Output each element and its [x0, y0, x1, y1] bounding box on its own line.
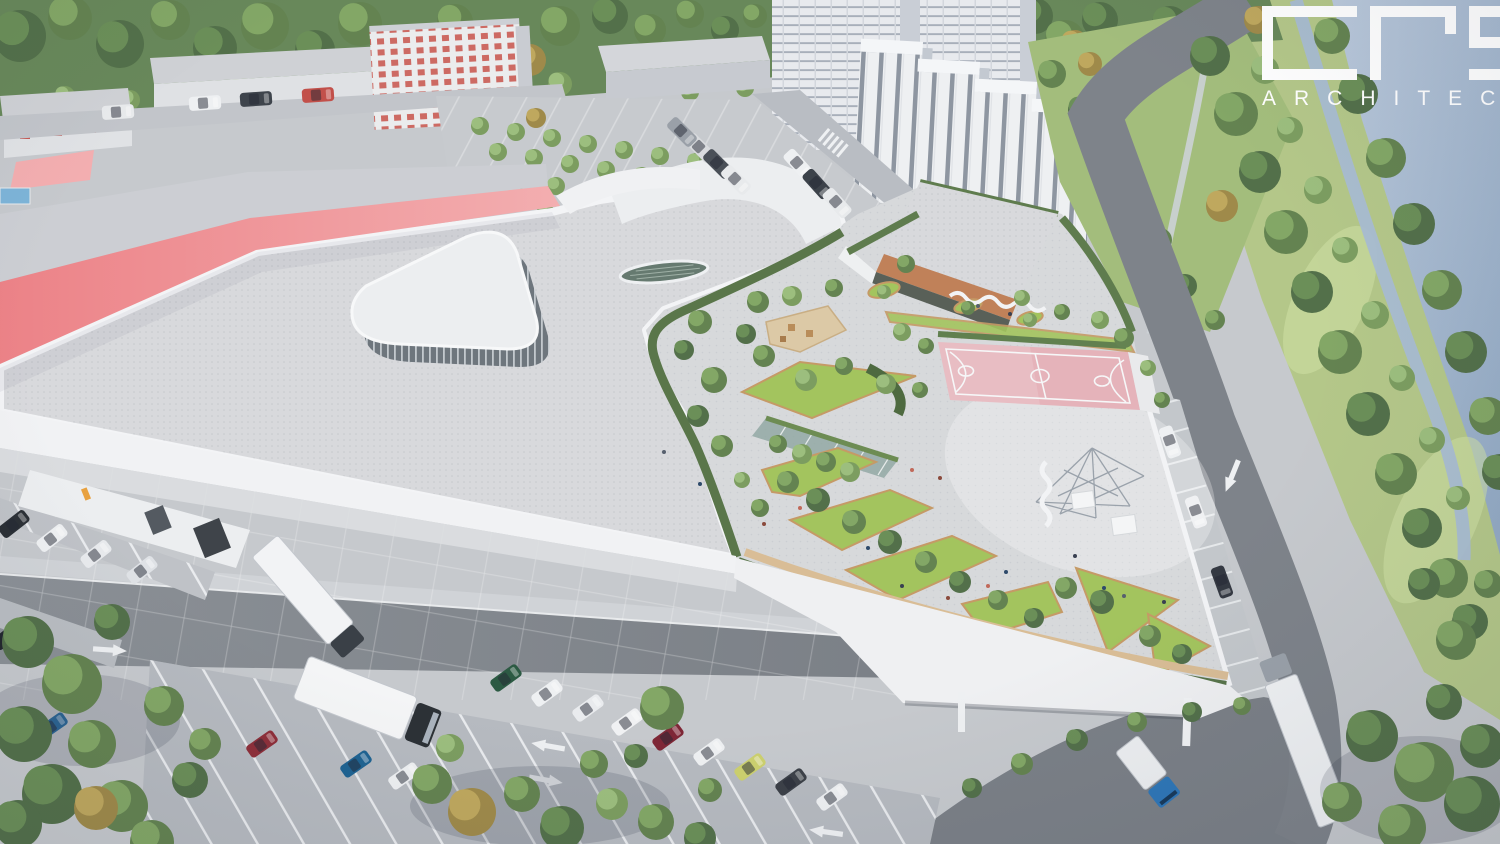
tree	[1444, 776, 1500, 832]
tree	[1422, 270, 1462, 310]
person	[698, 482, 702, 486]
tree	[1389, 365, 1415, 391]
tree	[1346, 710, 1398, 762]
aerial-rendering-canvas: ARCHITEC	[0, 0, 1500, 844]
tree	[1393, 203, 1435, 245]
tree	[897, 255, 915, 273]
person	[762, 522, 766, 526]
tree	[144, 686, 184, 726]
tree	[1366, 138, 1406, 178]
tree	[876, 374, 896, 394]
person	[938, 476, 942, 480]
tree	[1011, 753, 1033, 775]
tree	[842, 510, 866, 534]
tree	[1233, 697, 1251, 715]
logo-letter-r	[1370, 6, 1456, 80]
tree	[1140, 360, 1156, 376]
person	[910, 468, 914, 472]
tree	[687, 405, 709, 427]
tree	[1291, 271, 1333, 313]
person	[1102, 586, 1106, 590]
tree	[1426, 684, 1462, 720]
tree	[1214, 92, 1258, 136]
tree	[651, 147, 669, 165]
tree	[507, 123, 525, 141]
tree	[988, 590, 1008, 610]
tree	[1090, 590, 1114, 614]
tree	[1024, 608, 1044, 628]
tree	[743, 4, 767, 28]
tree	[596, 788, 628, 820]
tree	[1332, 237, 1358, 263]
tree	[734, 472, 750, 488]
kiosk	[1111, 514, 1137, 535]
tree	[1190, 36, 1230, 76]
tree	[624, 744, 648, 768]
tree	[1264, 210, 1308, 254]
tree	[638, 804, 674, 840]
tree	[640, 686, 684, 730]
tree	[736, 324, 756, 344]
tree	[893, 323, 911, 341]
person	[946, 596, 950, 600]
tree	[74, 786, 118, 830]
tree	[2, 616, 54, 668]
person	[1073, 554, 1077, 558]
tree	[436, 734, 464, 762]
tree	[1205, 310, 1225, 330]
tree	[777, 471, 799, 493]
tree	[769, 435, 787, 453]
tree	[753, 345, 775, 367]
tree	[1361, 301, 1389, 329]
tree	[792, 444, 812, 464]
tree	[1445, 331, 1487, 373]
tree	[949, 571, 971, 593]
person	[798, 506, 802, 510]
tree	[795, 369, 817, 391]
tree	[701, 367, 727, 393]
tree	[688, 310, 712, 334]
tree	[1239, 151, 1281, 193]
tree	[42, 654, 102, 714]
tree	[471, 117, 489, 135]
person	[1122, 594, 1126, 598]
tree	[878, 530, 902, 554]
tree	[912, 382, 928, 398]
logo-tagline: ARCHITEC	[1262, 87, 1500, 111]
tree	[1419, 427, 1445, 453]
architect-logo: ARCHITEC	[1262, 6, 1500, 111]
person	[1004, 570, 1008, 574]
person	[900, 584, 904, 588]
person	[866, 546, 870, 550]
tree	[877, 285, 891, 299]
tree	[489, 143, 507, 161]
tree	[1394, 742, 1454, 802]
tree	[816, 452, 836, 472]
tree	[962, 778, 982, 798]
tree	[1346, 392, 1390, 436]
tree	[1402, 508, 1442, 548]
tree	[747, 291, 769, 313]
tree	[915, 551, 937, 573]
tree	[1446, 486, 1470, 510]
logo-wordmark	[1262, 6, 1500, 80]
tree	[448, 788, 496, 836]
tree	[840, 462, 860, 482]
tree	[1277, 117, 1303, 143]
tree	[96, 20, 144, 68]
person	[976, 304, 980, 308]
person	[662, 450, 666, 454]
rendering-scene	[0, 0, 1500, 844]
tree	[241, 2, 289, 50]
tree	[172, 762, 208, 798]
tree	[1154, 392, 1170, 408]
tree	[615, 141, 633, 159]
person	[1162, 600, 1166, 604]
tree	[1054, 304, 1070, 320]
tree	[543, 129, 561, 147]
tree	[526, 108, 546, 128]
tree	[561, 155, 579, 173]
tree	[698, 778, 722, 802]
tree	[1038, 60, 1066, 88]
logo-letter-s	[1469, 6, 1500, 80]
person	[1008, 312, 1012, 316]
tree	[540, 6, 580, 46]
tree	[711, 435, 733, 457]
tree	[782, 286, 802, 306]
tree	[1182, 702, 1202, 722]
tree	[94, 604, 130, 640]
logo-letter-c	[1262, 6, 1357, 80]
tree	[1318, 330, 1362, 374]
person	[986, 584, 990, 588]
tree	[835, 357, 853, 375]
tree	[189, 728, 221, 760]
tree	[1375, 453, 1417, 495]
car	[302, 87, 335, 103]
tree	[1436, 620, 1476, 660]
tree	[1114, 328, 1134, 348]
car	[189, 95, 222, 111]
tree	[1172, 644, 1192, 664]
tree	[150, 0, 190, 40]
tree	[751, 499, 769, 517]
tree	[674, 340, 694, 360]
tree	[1139, 625, 1161, 647]
tree	[1014, 290, 1030, 306]
tree	[918, 338, 934, 354]
tree	[1066, 729, 1088, 751]
tree	[634, 14, 666, 46]
tree	[504, 776, 540, 812]
car	[240, 91, 273, 107]
tree	[676, 0, 704, 28]
tree	[579, 135, 597, 153]
tree	[412, 764, 452, 804]
canopy-column	[958, 692, 965, 732]
car	[102, 104, 135, 120]
tree	[580, 750, 608, 778]
tree	[68, 720, 116, 768]
tree	[1091, 311, 1109, 329]
tree	[1023, 313, 1037, 327]
tree	[1408, 568, 1440, 600]
kiosk	[1071, 491, 1095, 510]
tree	[825, 279, 843, 297]
tree	[1206, 190, 1238, 222]
tree	[806, 488, 830, 512]
tree	[1055, 577, 1077, 599]
tree	[1322, 782, 1362, 822]
tree	[1127, 712, 1147, 732]
tree	[961, 301, 975, 315]
tree	[1304, 176, 1332, 204]
